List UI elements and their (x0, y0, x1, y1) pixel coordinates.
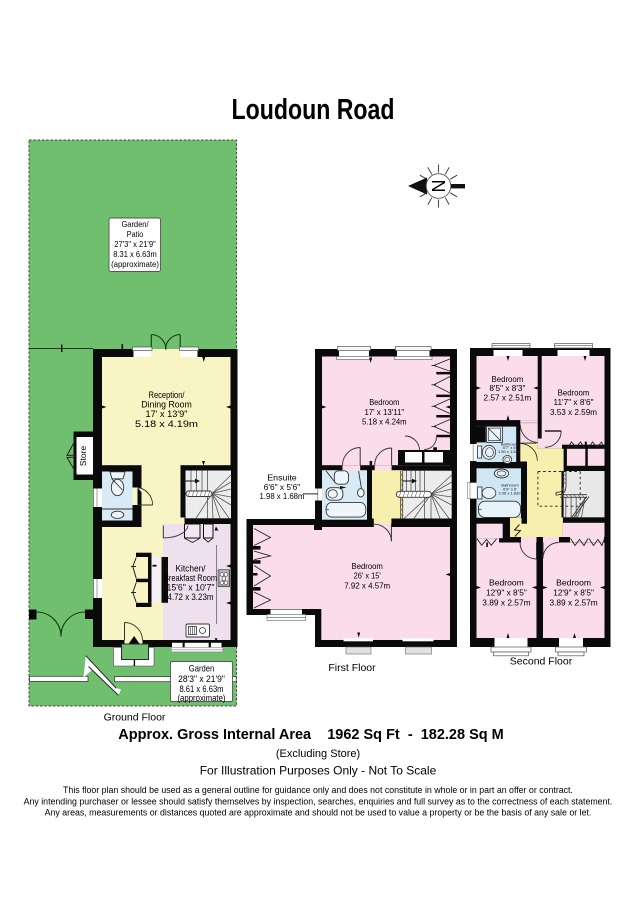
svg-text:17' x 13'9": 17' x 13'9" (146, 409, 188, 419)
svg-text:Loudoun Road: Loudoun Road (232, 94, 395, 126)
svg-text:5.18 x 4.24m: 5.18 x 4.24m (362, 417, 407, 427)
svg-text:28'3" x 21'9": 28'3" x 21'9" (178, 674, 225, 684)
svg-text:15'6" x 10'7": 15'6" x 10'7" (167, 583, 215, 593)
svg-text:7.92 x 4.57m: 7.92 x 4.57m (344, 581, 390, 591)
svg-text:2.57 x 2.51m: 2.57 x 2.51m (484, 393, 532, 403)
svg-text:Any areas, measurements or dis: Any areas, measurements or distances quo… (45, 808, 592, 818)
svg-text:Bedroom: Bedroom (556, 578, 591, 588)
svg-text:This floor plan should be used: This floor plan should be used as a gene… (63, 785, 573, 795)
svg-text:(approximate): (approximate) (177, 693, 225, 703)
svg-text:N: N (429, 180, 449, 193)
svg-text:1.98 x 1.68m: 1.98 x 1.68m (260, 491, 305, 501)
svg-text:(approximate): (approximate) (111, 259, 159, 269)
svg-text:3.89 x 2.57m: 3.89 x 2.57m (549, 598, 597, 608)
svg-text:Any intending purchaser or les: Any intending purchaser or lessee should… (24, 796, 613, 806)
svg-text:17' x 13'11": 17' x 13'11" (364, 407, 404, 417)
svg-text:8.31 x 6.63m: 8.31 x 6.63m (113, 249, 156, 259)
svg-text:12'9" x 8'5": 12'9" x 8'5" (553, 588, 594, 598)
svg-text:3.89 x 2.57m: 3.89 x 2.57m (482, 598, 530, 608)
svg-text:Store: Store (78, 446, 88, 467)
svg-text:2.06 x 1.83m: 2.06 x 1.83m (498, 491, 522, 496)
svg-text:1.50 x 1.52m: 1.50 x 1.52m (498, 449, 522, 454)
svg-text:27'3" x 21'9": 27'3" x 21'9" (114, 239, 156, 249)
svg-text:Second Floor: Second Floor (510, 656, 573, 668)
svg-text:Breakfast Room: Breakfast Room (164, 573, 217, 583)
svg-text:Kitchen/: Kitchen/ (176, 564, 207, 574)
svg-text:Bedroom: Bedroom (558, 388, 590, 398)
svg-text:Garden: Garden (189, 664, 214, 674)
svg-text:5.18 x 4.19m: 5.18 x 4.19m (135, 419, 198, 430)
svg-text:Reception/: Reception/ (149, 390, 185, 400)
svg-text:Garden/: Garden/ (121, 219, 149, 229)
svg-text:11'7" x 8'6": 11'7" x 8'6" (554, 397, 594, 407)
svg-text:4.72 x 3.23m: 4.72 x 3.23m (168, 592, 214, 602)
svg-text:First Floor: First Floor (328, 662, 376, 674)
svg-text:Ground Floor: Ground Floor (104, 712, 166, 724)
svg-text:Bedroom: Bedroom (489, 578, 524, 588)
svg-text:3.53 x 2.59m: 3.53 x 2.59m (550, 407, 597, 417)
svg-text:12'9" x 8'5": 12'9" x 8'5" (486, 588, 527, 598)
svg-text:For Illustration Purposes Only: For Illustration Purposes Only - Not To … (200, 764, 437, 778)
svg-text:Bedroom: Bedroom (369, 397, 399, 407)
svg-text:26' x 15': 26' x 15' (354, 571, 381, 581)
svg-text:Patio: Patio (127, 229, 144, 239)
svg-text:Approx. Gross Internal Area: Approx. Gross Internal Area 1962 Sq Ft -… (118, 727, 503, 743)
svg-text:(Excluding Store): (Excluding Store) (276, 748, 360, 760)
